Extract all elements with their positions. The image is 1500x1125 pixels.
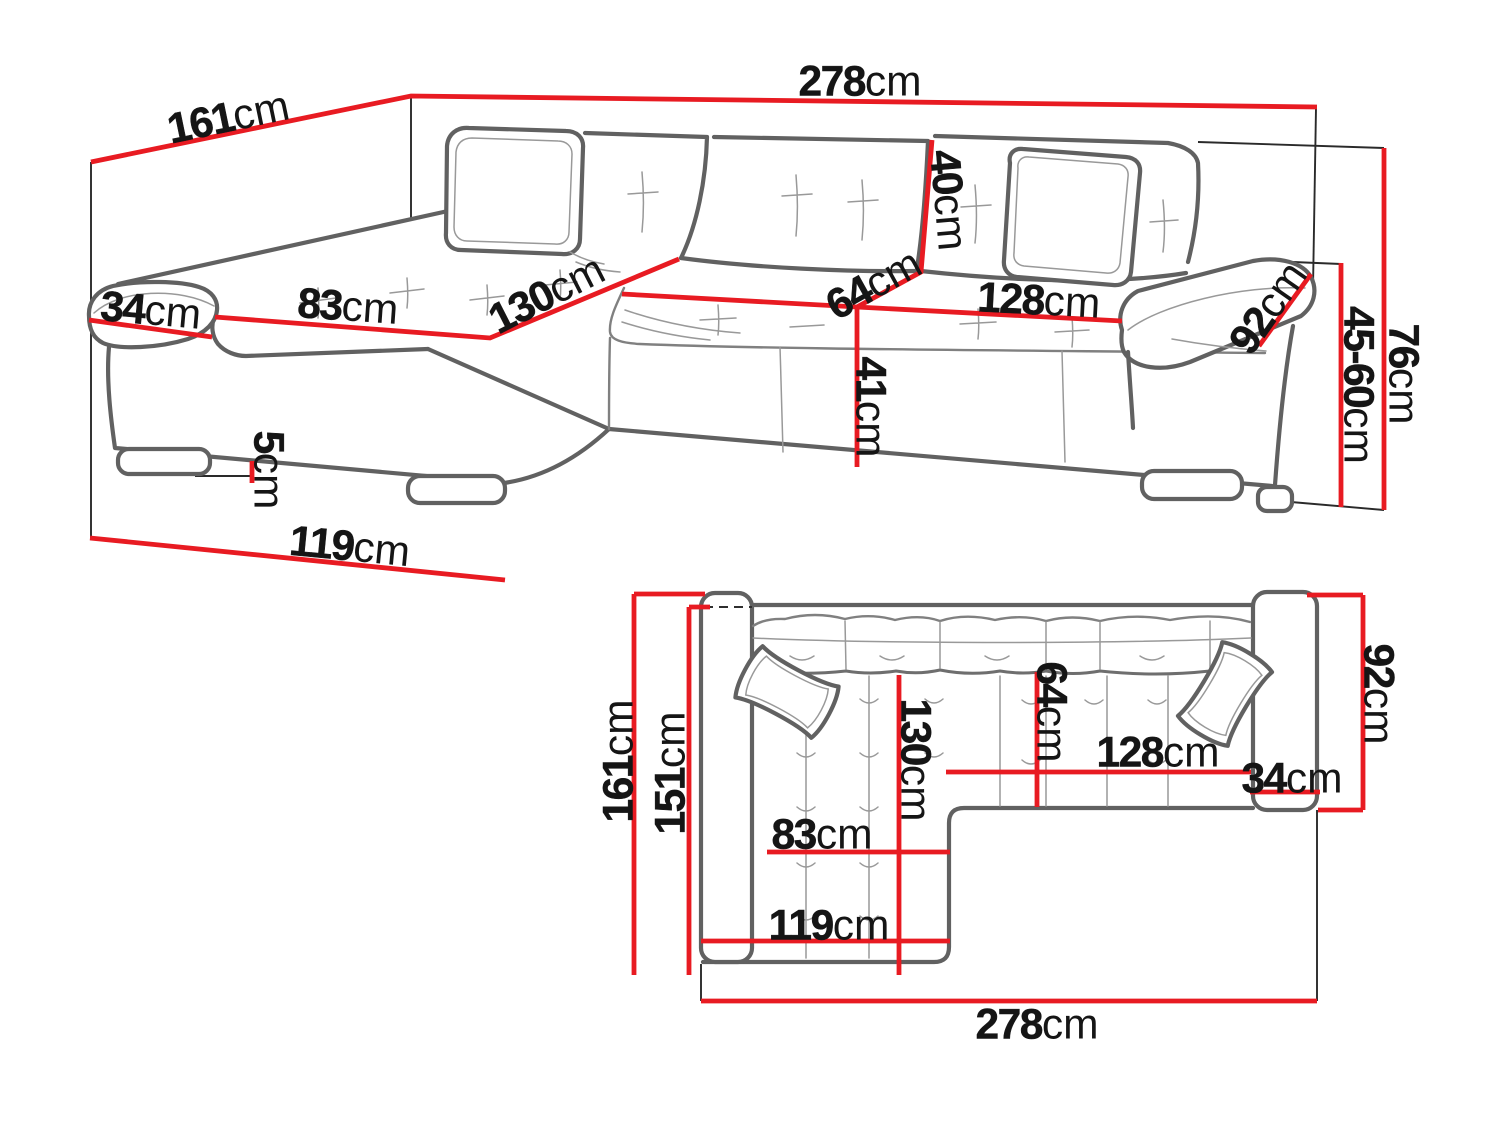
svg-text:34cm: 34cm bbox=[99, 283, 204, 339]
svg-text:41cm: 41cm bbox=[847, 357, 894, 458]
svg-text:83cm: 83cm bbox=[772, 812, 873, 859]
svg-text:5cm: 5cm bbox=[245, 431, 292, 510]
svg-text:40cm: 40cm bbox=[920, 148, 976, 253]
svg-text:161cm: 161cm bbox=[596, 699, 643, 822]
svg-text:45-60cm: 45-60cm bbox=[1335, 306, 1382, 464]
svg-text:151cm: 151cm bbox=[648, 711, 695, 834]
svg-text:119cm: 119cm bbox=[769, 903, 890, 950]
svg-text:64cm: 64cm bbox=[1028, 662, 1075, 763]
svg-text:278cm: 278cm bbox=[975, 1002, 1098, 1049]
svg-text:92cm: 92cm bbox=[1355, 644, 1402, 745]
svg-text:130cm: 130cm bbox=[892, 698, 939, 821]
svg-text:76cm: 76cm bbox=[1380, 324, 1427, 425]
svg-text:128cm: 128cm bbox=[976, 274, 1101, 327]
svg-text:83cm: 83cm bbox=[296, 280, 400, 334]
svg-text:128cm: 128cm bbox=[1096, 730, 1219, 777]
svg-text:278cm: 278cm bbox=[798, 59, 921, 106]
svg-text:34cm: 34cm bbox=[1242, 756, 1343, 803]
